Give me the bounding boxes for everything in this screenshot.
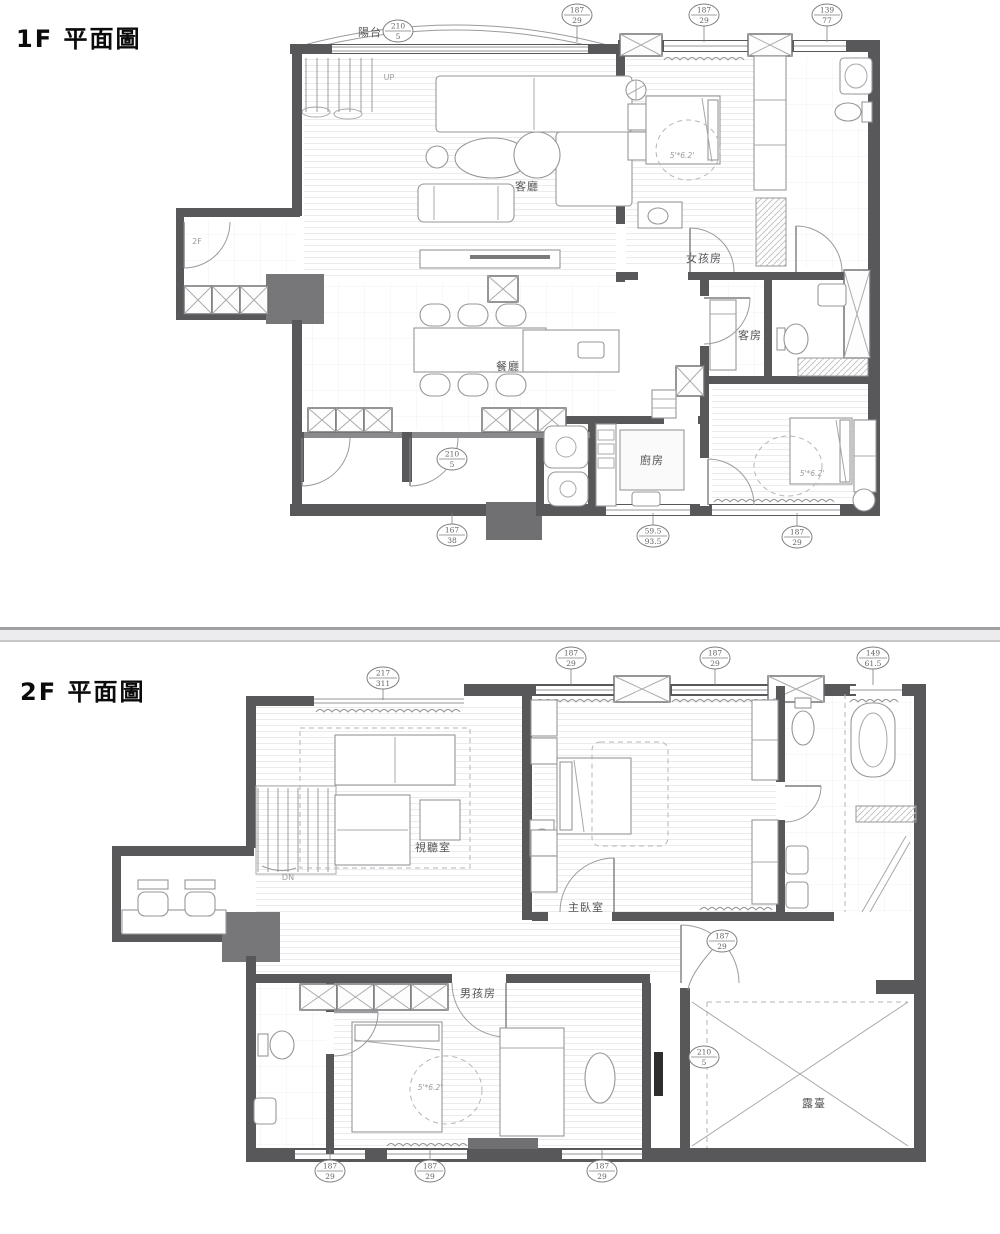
room-label-boys: 男孩房 [460, 987, 496, 1000]
floor-plan-page: 1F 平面圖 2F 平面圖 [0, 0, 1000, 1234]
dim-bubble: 18729 [556, 647, 586, 685]
floor2-title: 2F 平面圖 [20, 678, 145, 706]
svg-text:59.5: 59.5 [645, 527, 662, 536]
svg-text:77: 77 [822, 16, 832, 25]
stairs-down-label: DN [282, 873, 294, 882]
svg-text:29: 29 [325, 1172, 335, 1181]
svg-text:311: 311 [376, 679, 390, 688]
dim-bubble: 2105 [383, 20, 413, 42]
room-label-balcony: 陽台 [358, 25, 382, 39]
svg-text:29: 29 [597, 1172, 607, 1181]
svg-text:5: 5 [450, 460, 455, 469]
svg-text:187: 187 [323, 1162, 338, 1171]
room-label-kitchen: 廚房 [640, 453, 664, 467]
dim-bubble: 16738 [437, 513, 467, 546]
svg-text:210: 210 [445, 450, 460, 459]
room-label-terrace: 露臺 [802, 1096, 826, 1110]
svg-text:210: 210 [391, 22, 406, 31]
svg-text:187: 187 [697, 6, 712, 15]
floor-plan-drawing: 1F 平面圖 2F 平面圖 [0, 0, 1000, 1234]
foyer-cabinet [240, 286, 268, 314]
room-label-living: 客廳 [515, 179, 539, 193]
svg-text:149: 149 [866, 649, 881, 658]
floor2-plan: 露臺 DN 視聽室 主臥室 [112, 647, 926, 1182]
svg-text:5: 5 [702, 1058, 707, 1067]
stairs-up-label: UP [384, 73, 395, 82]
dim-bubble: 18729 [689, 4, 719, 42]
column-box [620, 34, 662, 56]
dining-cabinet [336, 408, 364, 432]
shaft-box [844, 270, 870, 358]
dining-cabinet [510, 408, 538, 432]
foyer-cabinet [212, 286, 240, 314]
svg-text:210: 210 [697, 1048, 712, 1057]
bed-size-back: 5'*6.2' [800, 469, 825, 478]
dim-bubble: 18729 [700, 647, 730, 685]
svg-text:217: 217 [376, 669, 391, 678]
svg-text:187: 187 [570, 6, 585, 15]
closet-box [411, 984, 448, 1010]
dim-bubble: 59.593.5 [637, 513, 669, 547]
svg-text:187: 187 [595, 1162, 610, 1171]
page-divider [0, 627, 1000, 642]
svg-text:29: 29 [792, 538, 802, 547]
svg-text:187: 187 [423, 1162, 438, 1171]
svg-text:187: 187 [708, 649, 723, 658]
floor1-title: 1F 平面圖 [16, 25, 141, 53]
svg-text:29: 29 [717, 942, 727, 951]
dim-bubble: 18729 [562, 4, 592, 42]
dining-cabinet [364, 408, 392, 432]
dim-bubble: 14961.5 [857, 647, 889, 685]
room-label-girls: 女孩房 [686, 251, 722, 265]
bed-size-boys: 5'*6.2' [418, 1083, 443, 1092]
dim-bubble: 217311 [367, 667, 399, 700]
foyer-cabinet [184, 286, 212, 314]
room-label-av: 視聽室 [415, 840, 451, 854]
svg-text:61.5: 61.5 [865, 659, 882, 668]
dining-cabinet [482, 408, 510, 432]
column-box [614, 676, 670, 702]
svg-text:29: 29 [566, 659, 576, 668]
dim-bubble: 2105 [437, 448, 467, 470]
svg-text:29: 29 [572, 16, 582, 25]
svg-text:29: 29 [710, 659, 720, 668]
svg-text:139: 139 [820, 6, 835, 15]
svg-text:38: 38 [447, 536, 457, 545]
dining-cabinet [308, 408, 336, 432]
svg-text:187: 187 [790, 528, 805, 537]
svg-text:29: 29 [425, 1172, 435, 1181]
svg-text:93.5: 93.5 [645, 537, 662, 546]
room-label-guest: 客房 [738, 328, 762, 342]
svg-text:5: 5 [396, 32, 401, 41]
svg-text:29: 29 [699, 16, 709, 25]
closet-box [300, 984, 337, 1010]
dim-bubble: 18729 [707, 930, 737, 952]
closet-box [374, 984, 411, 1010]
living-column [488, 276, 518, 302]
dim-bubble: 2105 [689, 1046, 719, 1068]
svg-text:187: 187 [564, 649, 579, 658]
svg-text:187: 187 [715, 932, 730, 941]
floor1-plan: UP 客廳 餐廳 廚房 [176, 4, 880, 548]
svg-text:167: 167 [445, 526, 460, 535]
stair-label-2f: 2F [192, 237, 202, 246]
dim-bubble: 18729 [782, 513, 812, 548]
room-label-master: 主臥室 [568, 900, 604, 914]
column-box [748, 34, 792, 56]
dim-bubble: 13977 [812, 4, 842, 42]
closet-box [337, 984, 374, 1010]
bed-size-girls: 5'*6.2' [670, 151, 695, 160]
shaft-box [676, 366, 704, 396]
room-label-dining: 餐廳 [496, 359, 520, 373]
